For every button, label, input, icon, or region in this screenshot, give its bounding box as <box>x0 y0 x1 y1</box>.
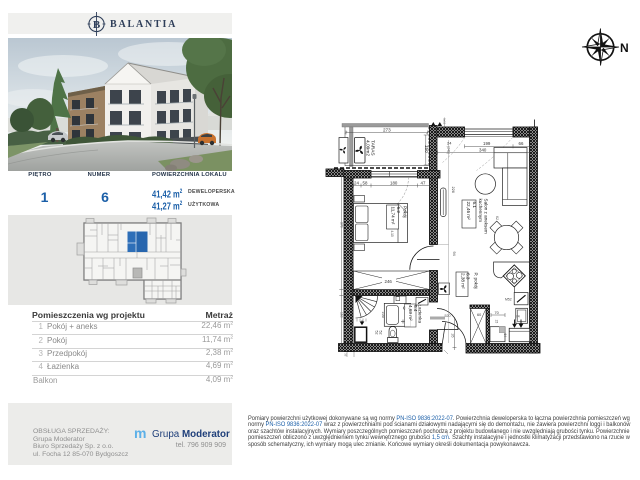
svg-text:52: 52 <box>379 331 383 335</box>
svg-text:6.1: 6.1 <box>472 202 477 209</box>
svg-text:4,09m2: 4,09m2 <box>364 140 370 156</box>
svg-text:62: 62 <box>495 216 499 220</box>
svg-text:150: 150 <box>424 145 429 153</box>
svg-text:N: N <box>620 41 629 55</box>
svg-text:226: 226 <box>451 187 455 193</box>
svg-text:199: 199 <box>483 141 491 146</box>
svg-text:100: 100 <box>381 312 385 318</box>
svg-text:4.10: 4.10 <box>390 231 394 237</box>
svg-text:66: 66 <box>519 141 524 146</box>
svg-text:B: B <box>93 19 101 31</box>
svg-text:(241): (241) <box>447 146 451 154</box>
svg-text:P. pokój: P. pokój <box>474 273 479 289</box>
svg-text:26: 26 <box>451 334 455 338</box>
svg-text:70: 70 <box>495 311 499 315</box>
svg-text:64: 64 <box>503 334 507 338</box>
svg-text:47: 47 <box>421 180 426 185</box>
svg-text:52: 52 <box>375 331 379 335</box>
svg-text:11,74 m²: 11,74 m² <box>391 207 396 225</box>
svg-text:94: 94 <box>452 252 456 256</box>
svg-text:Pokój: Pokój <box>403 206 408 218</box>
svg-text:38: 38 <box>344 353 348 357</box>
svg-text:273: 273 <box>383 128 391 133</box>
svg-text:160: 160 <box>340 312 344 318</box>
svg-text:24: 24 <box>354 180 359 185</box>
svg-text:2,38 m²: 2,38 m² <box>460 273 465 289</box>
svg-text:58: 58 <box>363 180 368 185</box>
svg-text:3x11: 3x11 <box>443 118 447 125</box>
svg-text:246: 246 <box>385 279 393 284</box>
svg-text:kuchennym: kuchennym <box>478 199 483 223</box>
svg-text:Salon z aneksem: Salon z aneksem <box>484 199 489 234</box>
svg-text:24: 24 <box>447 141 452 146</box>
svg-text:15: 15 <box>495 320 499 324</box>
svg-text:340: 340 <box>479 148 487 153</box>
svg-text:M52: M52 <box>505 298 512 302</box>
svg-text:520: 520 <box>445 314 451 318</box>
svg-text:74: 74 <box>516 314 520 318</box>
svg-text:60: 60 <box>477 313 481 317</box>
svg-text:180: 180 <box>390 180 398 185</box>
svg-text:4,69 m²: 4,69 m² <box>408 305 413 321</box>
svg-text:22,46 m²: 22,46 m² <box>466 202 471 221</box>
svg-text:370: 370 <box>340 222 344 228</box>
